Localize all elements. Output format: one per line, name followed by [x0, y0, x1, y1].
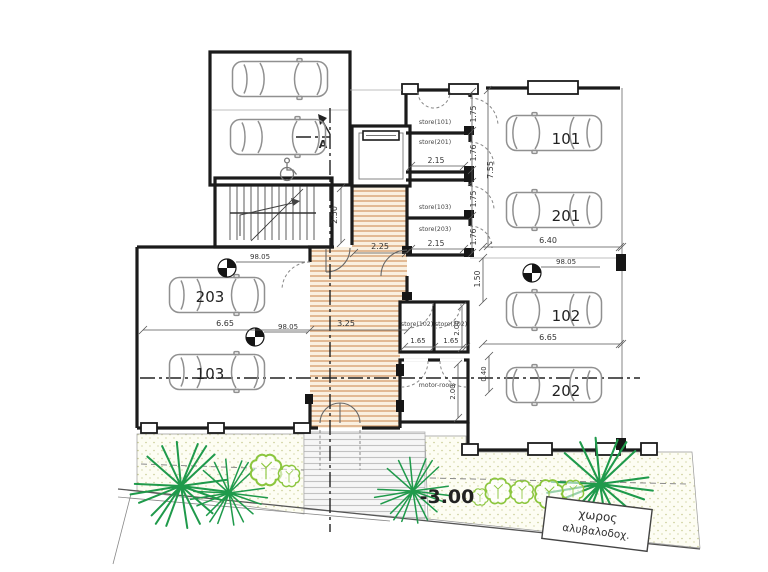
store-room-label: store(103) [419, 204, 451, 211]
parking-space-label-203: 203 [196, 288, 225, 306]
pilaster [141, 423, 157, 433]
section-marker-label: A [319, 138, 328, 151]
dim-right-width-bottom: 6.65 [539, 333, 557, 342]
vent-parapet-left [402, 84, 418, 94]
store-room-label: store(101) [419, 119, 451, 126]
dim-store-depth: 1.76 [469, 144, 478, 161]
store-room-label: store(203) [419, 226, 451, 233]
dim-store-depth: 1.76 [469, 228, 478, 245]
elevator [352, 126, 410, 186]
pilaster [528, 443, 552, 455]
store-room-label: store(102) [401, 321, 433, 328]
dim-gap: 1.50 [473, 270, 482, 287]
pilaster [641, 443, 657, 455]
dim-gap: 0.40 [480, 366, 488, 381]
dim-store-depth: 1.75 [469, 105, 478, 122]
spot-level-marker-icon [523, 264, 541, 282]
parking-space-label-101: 101 [552, 130, 581, 148]
stair-direction-arrow [240, 202, 297, 236]
parking-space-label-102: 102 [552, 307, 581, 325]
floor-plan-canvas: A 98.05 98.05 98.05 7.55 6.40 6.65 6.65 … [0, 0, 768, 572]
dim-store-width: 1.65 [410, 337, 425, 345]
store-room-label: store(201) [419, 139, 451, 146]
bush-icon [278, 465, 299, 486]
dim-store-width: 1.65 [443, 337, 458, 345]
bush-icon [511, 481, 533, 503]
pilaster [294, 423, 310, 433]
floor-plan: A 98.05 98.05 98.05 7.55 6.40 6.65 6.65 … [0, 0, 768, 572]
parking-space-label-202: 202 [552, 382, 581, 400]
parapet-block [528, 81, 578, 94]
top-parking-bay-walls [210, 52, 350, 185]
pilaster [208, 423, 224, 433]
parking-space-label-201: 201 [552, 207, 581, 225]
dim-store-width: 2.15 [428, 156, 445, 165]
dim-corridor-bottom: 3.25 [337, 319, 355, 328]
vent-parapet-right [449, 84, 478, 94]
store-room-label: store(202) [435, 321, 467, 328]
street-level-label: -3.00 [420, 486, 475, 508]
car-icon [231, 117, 326, 158]
dim-right-width-top: 6.40 [539, 236, 557, 245]
parking-space-label-103: 103 [196, 365, 225, 383]
bush-icon [251, 455, 281, 485]
spot-level-marker-icon [218, 259, 236, 277]
dim-stair-width: 2.50 [330, 206, 339, 224]
corridor-floor [310, 186, 407, 428]
pilaster [462, 444, 478, 455]
dim-corridor-top: 2.25 [371, 242, 389, 251]
bush-icon [485, 478, 510, 503]
motor-room-label: motor-room [419, 382, 455, 389]
staircase [230, 186, 316, 241]
dim-store-depth: 1.75 [469, 190, 478, 207]
spot-level-marker-icon [246, 328, 264, 346]
spot-level-value: 98.05 [556, 258, 576, 266]
spot-level-value: 98.05 [250, 253, 270, 261]
dim-store-width: 2.15 [428, 239, 445, 248]
car-icon [233, 59, 328, 100]
dim-right-height: 7.55 [486, 161, 495, 179]
dim-left-width: 6.65 [216, 319, 234, 328]
